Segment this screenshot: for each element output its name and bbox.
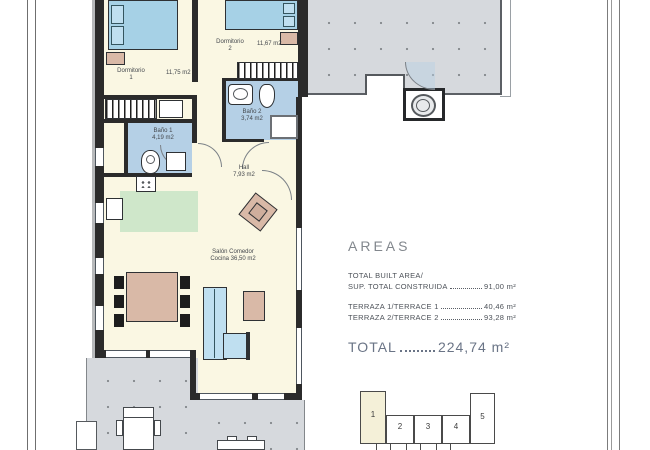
sink-bano1-icon xyxy=(166,152,186,171)
terrace-chair-1 xyxy=(227,436,237,441)
wall-bedroom-divider xyxy=(192,0,198,82)
key-plan-notch-2 xyxy=(406,443,421,450)
left-door-terrace xyxy=(95,306,104,330)
sofa-cushion-line xyxy=(214,289,215,358)
sheet-border-right-2 xyxy=(611,0,612,450)
terrace1-row: TERRAZA 1/TERRACE 1 40,46 m² xyxy=(348,301,516,312)
area-label-dormitorio1: 11,75 m2 xyxy=(166,70,191,76)
nightstand-1 xyxy=(106,52,125,65)
wall-hall-left xyxy=(192,99,197,143)
room-label-bano1: Baño 1 4,19 m2 xyxy=(152,128,174,142)
sink-bano2-basin xyxy=(233,88,248,100)
wardrobe-2 xyxy=(237,62,298,79)
kitchen-counter xyxy=(120,191,198,232)
toilet-bano2-icon xyxy=(259,84,275,108)
wall-bano2-left xyxy=(222,78,226,142)
floorplan-sheet: Dormitorio 1 11,75 m2 Dormitorio 2 11,67… xyxy=(0,0,650,450)
sheet-border-right-3 xyxy=(619,0,620,450)
terrace2-row: TERRAZA 2/TERRACE 2 93,28 m² xyxy=(348,312,516,323)
nightstand-2 xyxy=(280,32,298,45)
bed-2-pillow-bottom xyxy=(283,16,295,27)
dining-chair-3 xyxy=(114,314,124,327)
plot-outline-v xyxy=(510,0,511,97)
dining-chair-6 xyxy=(180,314,190,327)
left-window-3 xyxy=(95,258,104,274)
total-row: TOTAL 224,74 m² xyxy=(348,339,510,355)
window-living-3 xyxy=(200,393,252,400)
right-window-1 xyxy=(296,228,302,290)
stove-burners xyxy=(140,180,152,188)
sheet-border-right-1 xyxy=(607,0,608,450)
boiler-inner-icon xyxy=(416,99,430,112)
wardrobe-1 xyxy=(105,99,157,119)
right-window-2 xyxy=(296,328,302,384)
left-wall xyxy=(95,0,104,356)
wall-bano1-left xyxy=(124,119,128,177)
areas-panel: AREAS TOTAL BUILT AREA/ SUP. TOTAL CONST… xyxy=(348,238,516,355)
key-plan-unit-4: 4 xyxy=(442,415,470,444)
left-window-2 xyxy=(95,203,104,223)
wall-bano2-bottom xyxy=(226,139,264,142)
window-living-4 xyxy=(258,393,284,400)
fridge-icon xyxy=(106,198,123,220)
area-label-dormitorio2: 11,67 m2 xyxy=(257,41,282,47)
room-label-bano2: Baño 2 3,74 m2 xyxy=(241,109,263,123)
terrace-chair-2 xyxy=(247,436,257,441)
room-label-salon: Salón Comedor Cocina 36,50 m2 xyxy=(210,249,255,263)
dining-chair-5 xyxy=(180,295,190,308)
dining-table xyxy=(126,272,178,322)
key-plan-notch-3 xyxy=(436,443,451,450)
bed-2-pillow-top xyxy=(283,3,295,14)
left-window-1 xyxy=(95,148,104,166)
sheet-border-left-outer xyxy=(27,0,28,450)
built-area-row-line2: SUP. TOTAL CONSTRUIDA 91,00 m² xyxy=(348,281,516,292)
dining-chair-4 xyxy=(180,276,190,289)
living-room-lower-part xyxy=(190,358,302,394)
key-plan-unit-5: 5 xyxy=(470,393,495,444)
sun-lounger-arm-left xyxy=(116,420,123,436)
built-area-row-line1: TOTAL BUILT AREA/ xyxy=(348,270,516,281)
wall-bano1-top xyxy=(95,119,192,123)
window-living-1 xyxy=(106,350,146,358)
plot-outline-h xyxy=(500,96,511,97)
wardrobe-1-door xyxy=(159,100,183,118)
window-living-2 xyxy=(150,350,190,358)
terrace-1 xyxy=(308,0,502,95)
room-label-dormitorio2: Dormitorio 2 xyxy=(216,39,244,53)
dining-chair-1 xyxy=(114,276,124,289)
bed-1-pillow-bottom xyxy=(111,26,124,45)
sheet-border-left-inner xyxy=(35,0,36,450)
key-plan-notch-1 xyxy=(376,443,391,450)
sun-lounger xyxy=(123,407,154,450)
key-plan-unit-1: 1 xyxy=(360,391,386,444)
bed-1-pillow-top xyxy=(111,5,124,24)
right-wall-upper xyxy=(298,0,308,97)
room-label-dormitorio1: Dormitorio 1 xyxy=(117,68,145,82)
sun-lounger-headrest xyxy=(123,417,154,418)
toilet-bano1-lid xyxy=(146,155,155,164)
room-label-hall: Hall 7,93 m2 xyxy=(233,165,255,179)
tv-unit xyxy=(246,332,250,360)
terrace-table xyxy=(217,440,265,450)
armchair xyxy=(243,291,265,321)
planter xyxy=(76,421,97,450)
key-plan-unit-3: 3 xyxy=(414,415,442,444)
sun-lounger-arm-right xyxy=(154,420,161,436)
key-plan-unit-2: 2 xyxy=(386,415,414,444)
dining-chair-2 xyxy=(114,295,124,308)
shower-bano2 xyxy=(270,115,298,139)
areas-heading: AREAS xyxy=(348,238,516,254)
terrace-recess xyxy=(365,74,405,95)
